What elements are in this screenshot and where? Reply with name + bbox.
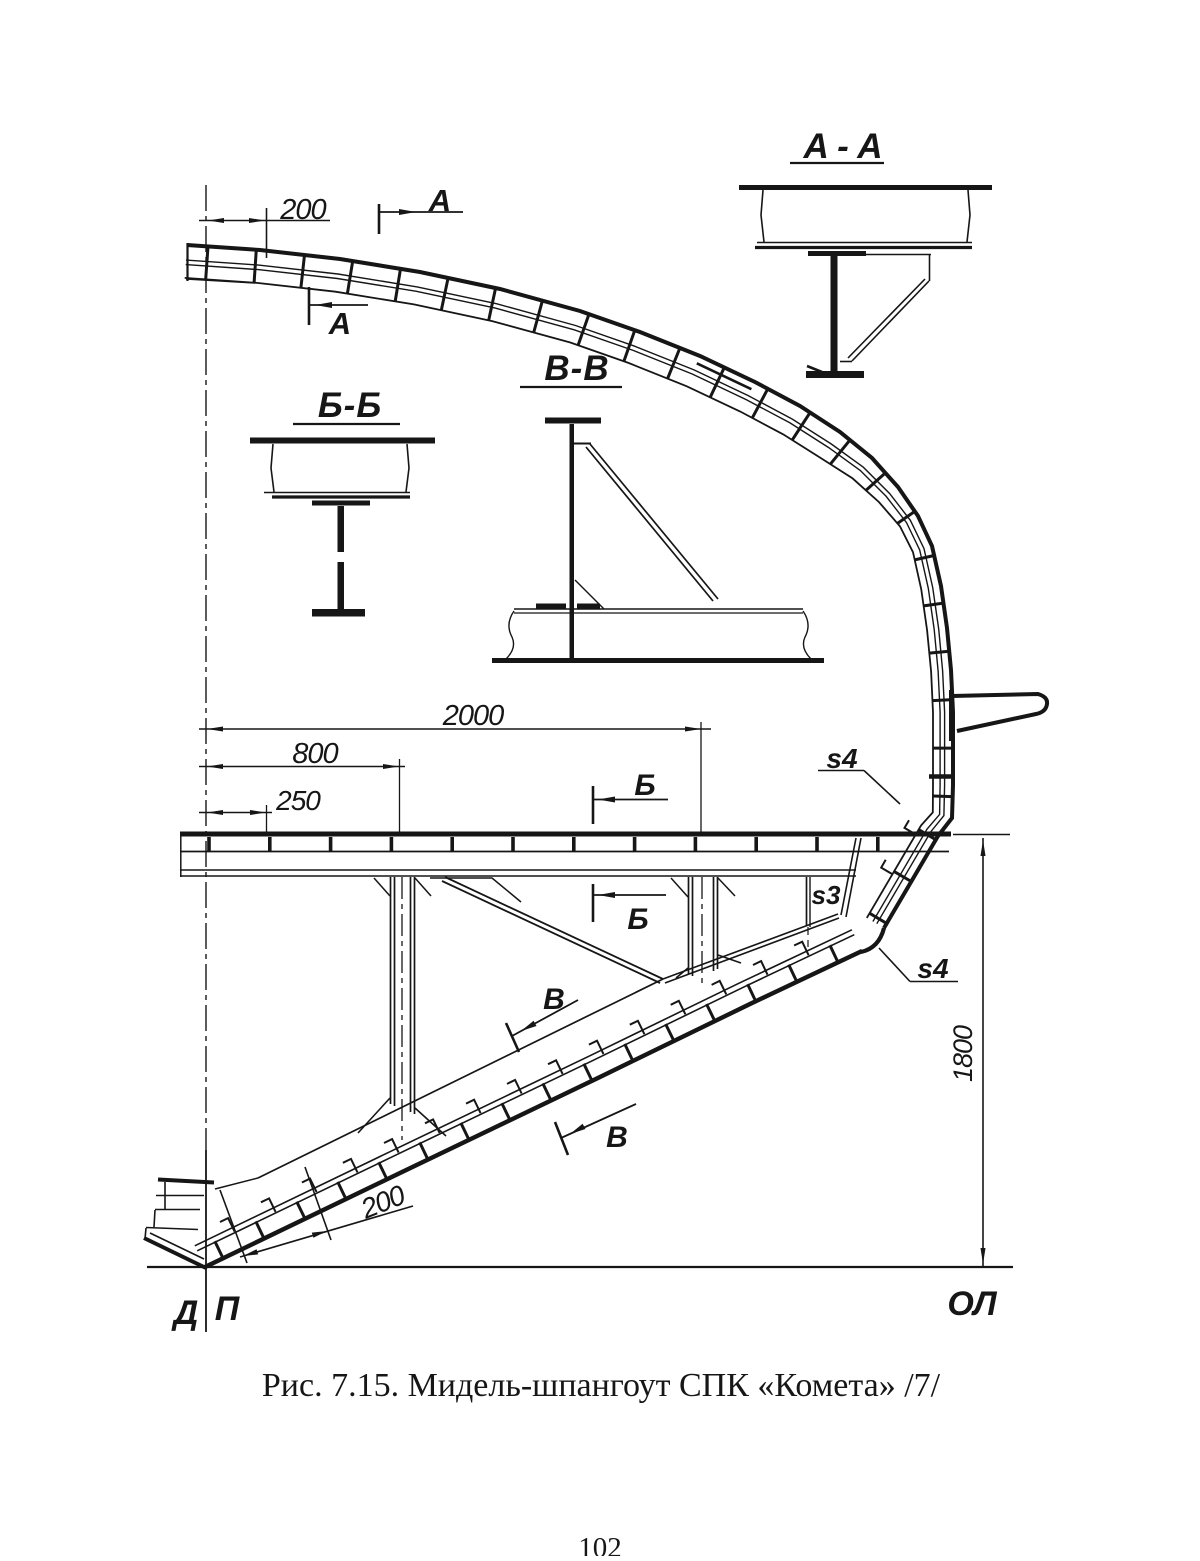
svg-text:В-В: В-В [544,349,609,388]
svg-text:200: 200 [279,194,326,226]
svg-text:250: 250 [275,785,321,816]
svg-text:Д: Д [171,1294,199,1332]
svg-text:В: В [606,1121,628,1154]
svg-text:A: A [428,183,451,218]
svg-text:В: В [543,983,565,1016]
svg-text:A - A: A - A [802,127,882,166]
svg-text:102: 102 [578,1532,622,1556]
svg-text:Б: Б [634,769,655,802]
svg-text:Б: Б [627,903,648,936]
svg-text:A: A [328,306,351,341]
svg-text:Б-Б: Б-Б [318,386,382,425]
svg-text:s3: s3 [812,880,841,910]
svg-text:800: 800 [292,738,338,770]
svg-text:s4: s4 [826,743,858,774]
svg-text:1800: 1800 [948,1025,978,1082]
svg-text:2000: 2000 [442,700,504,732]
svg-text:П: П [215,1290,241,1328]
svg-text:ОЛ: ОЛ [947,1285,997,1323]
svg-text:s4: s4 [917,953,949,984]
svg-text:Рис. 7.15. Мидель-шпангоут СПК: Рис. 7.15. Мидель-шпангоут СПК «Комета» … [262,1367,941,1404]
